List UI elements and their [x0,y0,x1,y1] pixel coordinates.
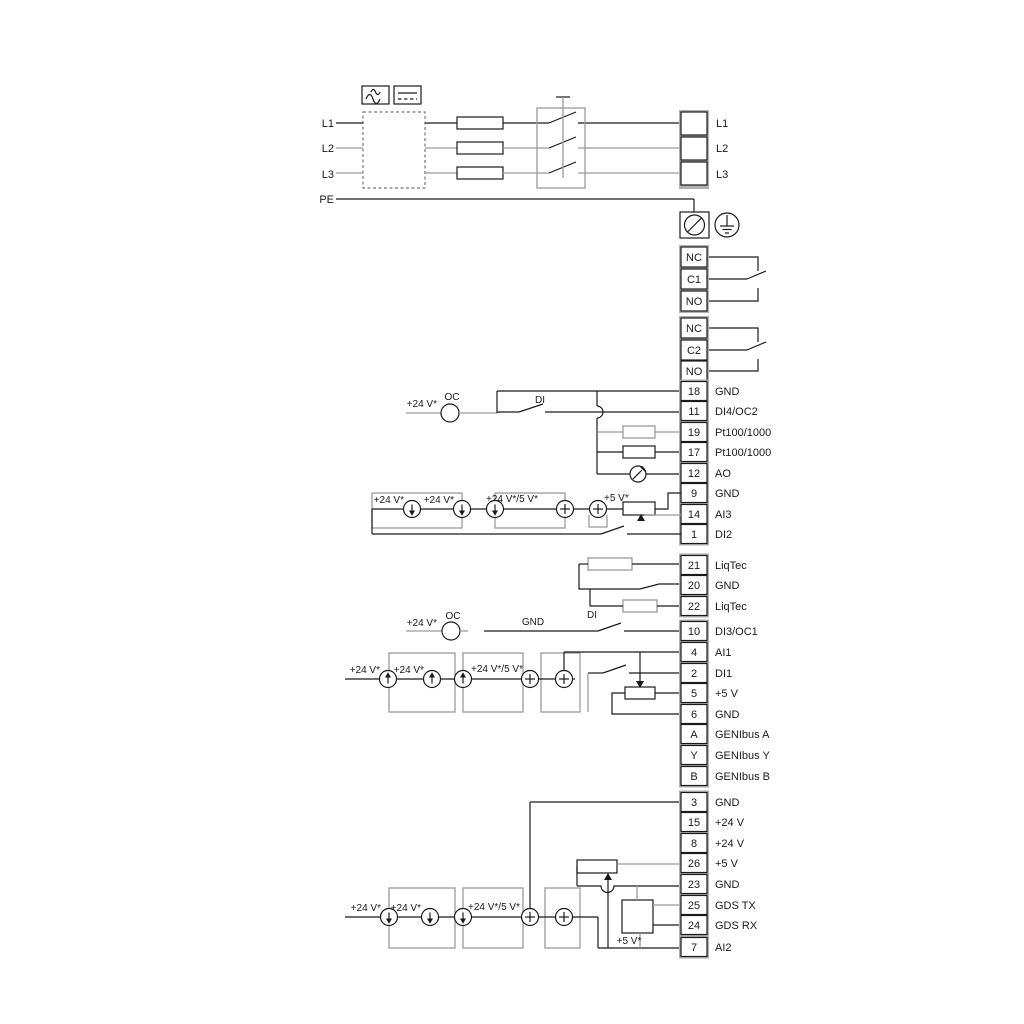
gds-sensor-box [622,900,653,933]
terminal-label: AO [715,468,731,480]
input-label-pe: PE [319,194,334,206]
terminal-number: 3 [691,797,697,809]
terminal-number: 7 [691,942,697,954]
potentiometer [625,687,655,699]
fuse-l1 [457,117,503,129]
liqtec-sensor-1 [588,558,632,570]
potentiometer [623,502,655,515]
terminal-label: DI3/OC1 [715,626,758,638]
terminal-label: GND [715,488,740,500]
terminal-label: +24 V [715,817,745,829]
terminal-number: A [690,729,698,741]
terminal-label: GND [715,386,740,398]
relay-2-block: NC C2 NO [679,316,766,383]
terminal-label: Pt100/1000 [715,447,771,459]
open-collector-icon [442,622,460,640]
screw-terminal-icon [680,212,709,238]
wiring-diagram: L1 L2 L3 PE [0,0,1024,1024]
phase-l1-wiring [336,112,681,129]
relay2-nc-label: NC [686,323,702,335]
liqtec-sensor-2 [623,600,657,612]
terminal-label: GENIbus A [715,729,770,741]
emc-filter-box [363,112,425,188]
terminal-number: 26 [688,858,700,870]
terminal-number: 20 [688,580,700,592]
terminal-label: AI1 [715,647,732,659]
voltage-source-icon [522,671,539,688]
v24-5-label: +24 V*/5 V* [471,664,523,675]
phase-l3-wiring [336,162,681,179]
relay2-no-label: NO [686,366,703,378]
relay2-contact [709,328,766,371]
terminal-label: LiqTec [715,560,747,572]
relay1-no-label: NO [686,296,703,308]
terminal-number: 5 [691,688,697,700]
output-label-l3: L3 [716,169,728,181]
pe-ground-section [336,199,739,238]
analog-output-gauge-icon [597,466,681,482]
terminal-label: +5 V [715,858,739,870]
dc-symbol-icon [394,86,421,104]
terminal-label: Pt100/1000 [715,427,771,439]
io-terminal-block-3: 3 15 8 26 23 25 24 7 GND +24 V +24 V +5 … [679,791,758,959]
input-label-l3: L3 [322,169,334,181]
di4-switch [519,404,543,412]
pt100-sensor-1 [597,426,681,438]
terminal-label: +24 V [715,838,745,850]
terminal-label: GND [715,580,740,592]
terminal-number: 19 [688,427,700,439]
current-source-icon [455,909,472,926]
terminal-label: GENIbus Y [715,750,770,762]
input-label-l2: L2 [322,143,334,155]
io-terminal-block-1: 18 11 19 17 12 9 14 1 GND DI4/OC2 Pt100/… [679,380,771,546]
di3-switch [598,623,621,631]
liqtec-sensors [579,558,681,612]
terminal-label: GDS TX [715,900,756,912]
terminal-number: 1 [691,529,697,541]
terminal-label: DI1 [715,668,732,680]
terminal-label: DI2 [715,529,732,541]
gds-sensor-wiring: +5 V* [617,886,681,948]
terminal-number: 25 [688,900,700,912]
voltage-source-icon [556,671,573,688]
terminal-label: AI3 [715,509,732,521]
terminal-number: 22 [688,601,700,613]
voltage-source-icon [556,909,573,926]
current-source-icon [381,909,398,926]
power-terminal-block: L1 L2 L3 [679,110,728,189]
terminal-l2 [681,137,707,160]
current-source-icon [455,671,472,688]
gnd-label: GND [522,617,544,628]
terminal-number: 24 [688,920,700,932]
terminal-number: 8 [691,838,697,850]
ai2-input-options: +24 V* +24 V* +24 V*/5 V* +5 V* [345,802,681,948]
terminal-number: B [690,771,697,783]
relay1-nc-label: NC [686,252,702,264]
di-label: DI [587,610,597,621]
terminal-number: 17 [688,447,700,459]
terminal-number: 9 [691,488,697,500]
relay1-contact [709,257,766,301]
v24-label: +24 V* [407,399,437,410]
ai3-input-options: +24 V* +24 V* +24 V*/5 V* +5 V* [372,493,681,534]
terminal-number: 12 [688,468,700,480]
di4-oc2-wiring: +24 V* OC DI [406,391,681,482]
current-source-icon [487,501,504,518]
terminal-number: 23 [688,879,700,891]
potentiometer [577,860,617,873]
fuse-l3 [457,167,503,179]
voltage-source-icon [590,501,607,518]
output-label-l2: L2 [716,143,728,155]
terminal-label: GDS RX [715,920,758,932]
v24-label: +24 V* [394,665,424,676]
fuse-l2 [457,142,503,154]
di1-switch [603,665,626,673]
terminal-number: Y [690,750,698,762]
wiring-diagram-page: L1 L2 L3 PE [0,0,1024,1024]
relay1-c1-label: C1 [687,274,701,286]
terminal-label: +5 V [715,688,739,700]
voltage-source-icon [557,501,574,518]
terminal-number: 18 [688,386,700,398]
relay2-c2-label: C2 [687,345,701,357]
liqtec-terminal-block: 21 20 22 LiqTec GND LiqTec [679,554,747,618]
current-source-icon [422,909,439,926]
earth-ground-icon [715,213,739,237]
terminal-number: 4 [691,647,697,659]
di3-oc1-wiring: +24 V* OC GND DI [406,610,681,640]
ai1-input-options: +24 V* +24 V* +24 V*/5 V* [345,652,681,714]
current-source-icon [404,501,421,518]
output-label-l1: L1 [716,118,728,130]
terminal-number: 15 [688,817,700,829]
terminal-l3 [681,162,707,185]
oc-label: OC [445,392,460,403]
input-label-l1: L1 [322,118,334,130]
ac-symbol-icon [362,86,389,104]
terminal-number: 21 [688,560,700,572]
current-source-icon [380,671,397,688]
terminal-label: AI2 [715,942,732,954]
mains-input-section: L1 L2 L3 PE [319,86,681,206]
io-terminal-block-2: 10 4 2 5 6 A Y B DI3/OC1 AI1 DI1 +5 V GN… [679,620,770,788]
oc-label: OC [446,611,461,622]
v24-label: +24 V* [424,495,454,506]
terminal-label: GND [715,797,740,809]
v5-label: +5 V* [617,936,642,947]
terminal-label: GND [715,709,740,721]
di-label: DI [535,395,545,406]
v24-label: +24 V* [351,903,381,914]
terminal-l1 [681,112,707,135]
pt100-sensor-2 [597,446,681,458]
terminal-number: 2 [691,668,697,680]
current-source-icon [424,671,441,688]
terminal-number: 14 [688,509,700,521]
v24-label: +24 V* [350,665,380,676]
current-source-icon [454,501,471,518]
wiper-arrow [604,873,612,880]
v24-label: +24 V* [407,618,437,629]
terminal-label: LiqTec [715,601,747,613]
v24-label: +24 V* [374,495,404,506]
terminal-number: 6 [691,709,697,721]
terminal-number: 11 [688,406,699,418]
v24-5-label: +24 V*/5 V* [468,902,520,913]
voltage-source-icon [522,909,539,926]
terminal-label: GENIbus B [715,771,770,783]
terminal-label: GND [715,879,740,891]
relay-1-block: NC C1 NO [679,245,766,313]
terminal-label: DI4/OC2 [715,406,758,418]
phase-l2-wiring [336,137,681,154]
terminal-number: 10 [688,626,700,638]
open-collector-icon [441,404,459,422]
